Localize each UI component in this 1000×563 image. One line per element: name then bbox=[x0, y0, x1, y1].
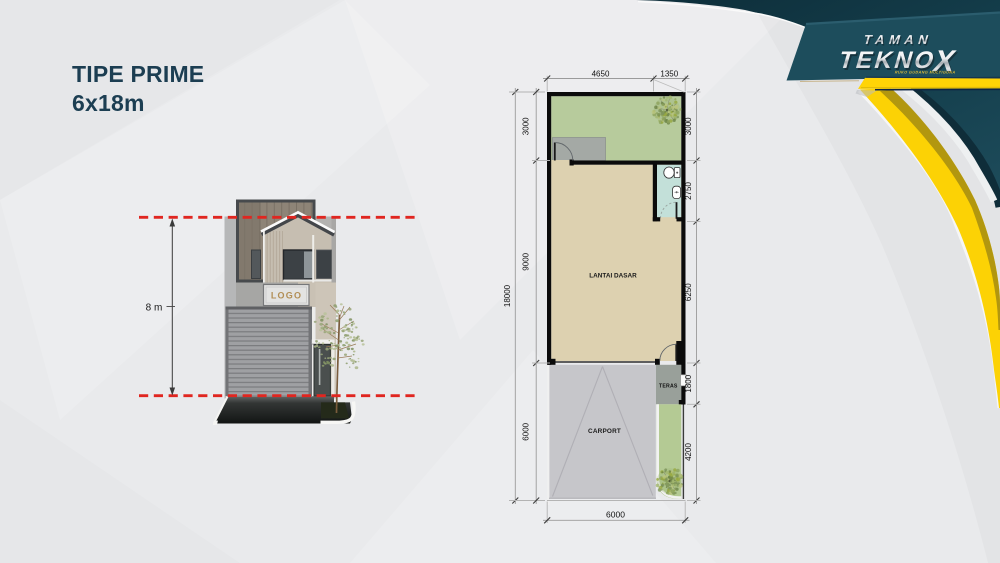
svg-text:LANTAI DASAR: LANTAI DASAR bbox=[589, 273, 637, 280]
svg-text:1800: 1800 bbox=[684, 374, 693, 392]
svg-text:18000: 18000 bbox=[503, 284, 512, 307]
svg-text:TERAS: TERAS bbox=[659, 383, 678, 389]
svg-text:TAMAN: TAMAN bbox=[862, 32, 935, 47]
svg-text:1350: 1350 bbox=[660, 69, 678, 78]
svg-text:8 m: 8 m bbox=[146, 303, 163, 314]
svg-text:RUKO GUDANG MULTIGUNA: RUKO GUDANG MULTIGUNA bbox=[894, 70, 956, 75]
svg-text:LOGO: LOGO bbox=[271, 291, 302, 301]
svg-text:3000: 3000 bbox=[684, 117, 693, 135]
svg-text:6250: 6250 bbox=[684, 283, 693, 301]
svg-text:3000: 3000 bbox=[521, 117, 530, 135]
svg-text:6000: 6000 bbox=[606, 510, 625, 520]
svg-text:9000: 9000 bbox=[521, 252, 530, 270]
svg-text:4200: 4200 bbox=[684, 443, 693, 461]
svg-text:4650: 4650 bbox=[592, 69, 610, 78]
svg-text:CARPORT: CARPORT bbox=[588, 428, 621, 435]
svg-text:6000: 6000 bbox=[521, 422, 530, 440]
svg-text:2750: 2750 bbox=[684, 182, 693, 200]
